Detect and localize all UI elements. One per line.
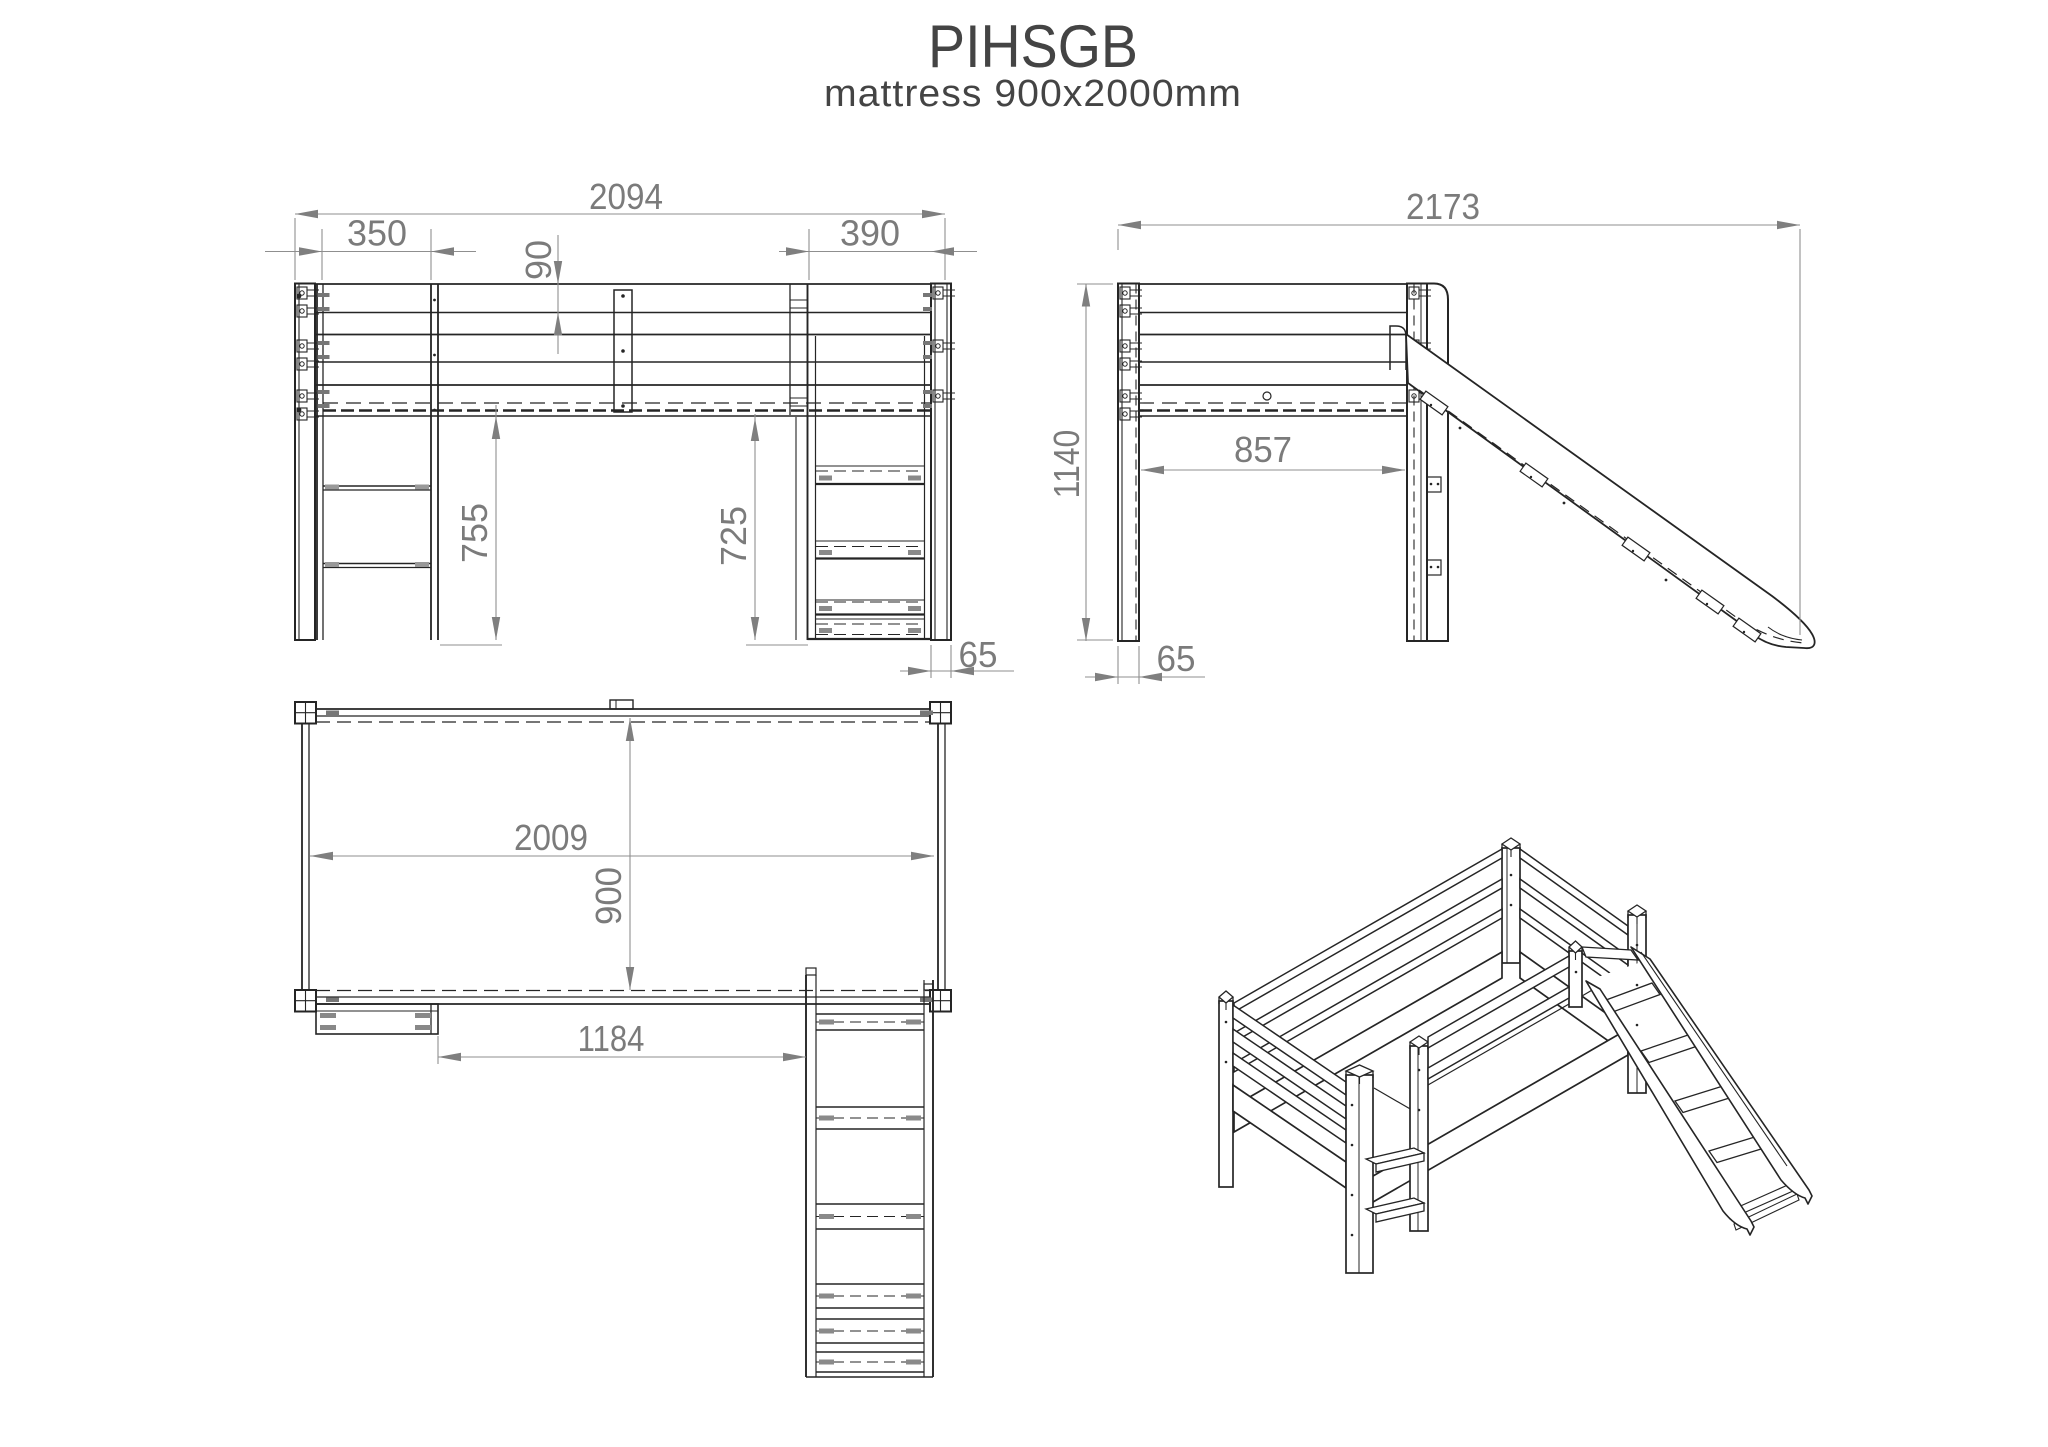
svg-text:PIHSGB: PIHSGB bbox=[928, 14, 1138, 80]
svg-text:2094: 2094 bbox=[589, 178, 663, 217]
svg-text:mattress 900x2000mm: mattress 900x2000mm bbox=[824, 73, 1242, 115]
svg-text:390: 390 bbox=[840, 212, 900, 253]
svg-text:857: 857 bbox=[1234, 430, 1292, 470]
svg-text:350: 350 bbox=[347, 212, 407, 253]
svg-text:90: 90 bbox=[518, 240, 559, 280]
svg-text:2173: 2173 bbox=[1406, 188, 1480, 227]
svg-text:1140: 1140 bbox=[1047, 430, 1087, 499]
svg-text:65: 65 bbox=[959, 635, 998, 676]
svg-text:725: 725 bbox=[713, 506, 754, 566]
svg-text:2009: 2009 bbox=[514, 819, 588, 858]
svg-text:65: 65 bbox=[1157, 639, 1196, 680]
svg-text:900: 900 bbox=[589, 867, 629, 925]
svg-text:1184: 1184 bbox=[578, 1020, 645, 1060]
svg-text:755: 755 bbox=[454, 503, 495, 563]
